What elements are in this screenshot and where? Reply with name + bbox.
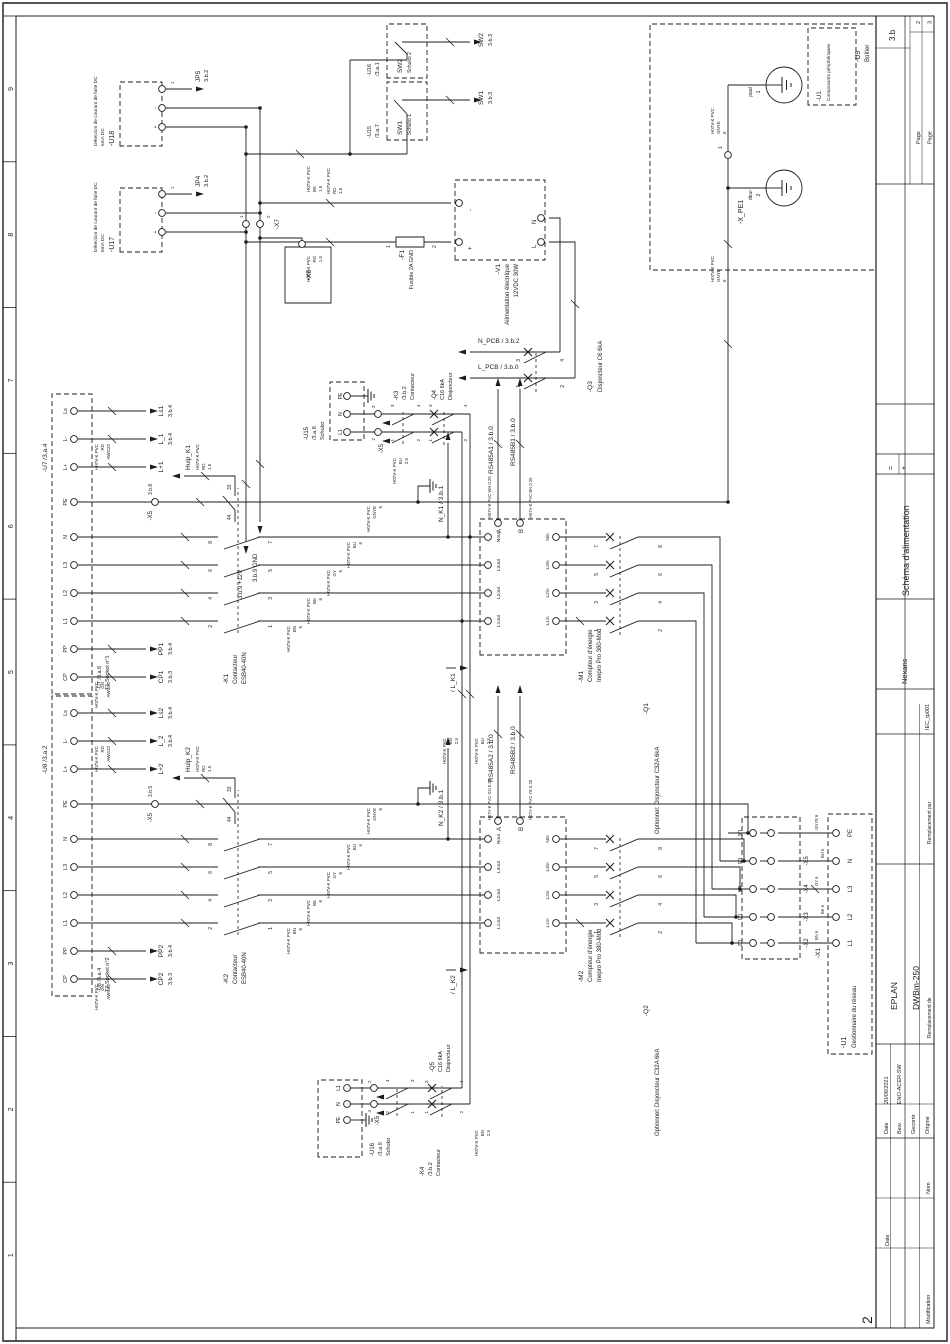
schematic-label: 3: [371, 405, 376, 408]
schematic-label: Hulp_K1: [185, 445, 192, 470]
schematic-label: A: [497, 827, 503, 831]
schematic-label: 5: [268, 871, 274, 874]
schematic-label: 6: [318, 900, 323, 903]
schematic-label: -M1: [578, 670, 585, 682]
schematic-label: Contacteur: [233, 955, 239, 984]
schematic-label: 1: [424, 1111, 429, 1114]
schematic-label: SW2: [478, 33, 485, 47]
schematic-label: GNYE: [716, 121, 721, 134]
schematic-label: 12VDC 30W: [514, 264, 520, 298]
terminal-circle: [485, 920, 492, 927]
schematic-label: 6mA DC: [100, 234, 106, 252]
signal-arrow: [458, 376, 466, 381]
schematic-label: SW1: [478, 91, 485, 105]
schematic-label: 2: [367, 1080, 372, 1083]
schematic-label: 6: [722, 279, 727, 282]
signal-arrow: [150, 465, 158, 470]
schematic-label: Page: [916, 131, 922, 144]
schematic-label: H07V-K PVC: [326, 871, 331, 898]
schematic-label: BK: [312, 598, 317, 604]
schematic-label: H07V-K PVC: [474, 737, 479, 764]
schematic-label: Schéma d'alimentation: [901, 505, 911, 596]
terminal-circle: [725, 152, 732, 159]
wire: [638, 537, 720, 861]
schematic-label: EPLAN: [889, 982, 899, 1010]
schematic-label: L2: [63, 892, 69, 898]
schematic-label: deur: [748, 190, 754, 200]
signal-arrow: [460, 666, 468, 671]
schematic-label: H07V-K PVC: [195, 745, 200, 772]
schematic-label: L_1: [158, 433, 165, 444]
terminal-circle: [375, 411, 382, 418]
schematic-label: 2: [658, 931, 664, 934]
schematic-sheet: 123456789DateNomModificationDate20/08/20…: [0, 0, 950, 1344]
terminal-circle: [485, 590, 492, 597]
signal-arrow: [376, 1095, 384, 1100]
schematic-label: PP1: [158, 642, 165, 655]
schematic-label: 3.b.2: [204, 70, 210, 82]
schematic-label: 2.5: [486, 1130, 491, 1137]
schematic-label: /3.a.1: [375, 62, 381, 76]
terminal-circle: [71, 920, 78, 927]
junction-dot: [726, 186, 730, 190]
terminal-circle: [375, 429, 382, 436]
schematic-label: -X5: [375, 1115, 381, 1125]
terminal-circle: [768, 940, 775, 947]
schematic-label: 4: [463, 404, 468, 407]
schematic-label: / L_K2: [450, 975, 457, 994]
schematic-label: 1: [170, 186, 175, 189]
schematic-label: Ls: [63, 408, 69, 414]
schematic-label: 1.5: [318, 256, 323, 263]
terminal-circle: [517, 818, 524, 825]
schematic-label: -U16: [367, 64, 373, 76]
schematic-label: 2: [756, 193, 762, 196]
schematic-label: H07V-K PVC: [346, 843, 351, 870]
column-number: 5: [8, 670, 15, 674]
wire: [395, 42, 407, 54]
schematic-label: -X5: [148, 812, 154, 822]
schematic-label: BN: [448, 738, 453, 744]
schematic-label: -U15: [367, 126, 373, 138]
schematic-label: GNYE: [372, 506, 377, 519]
terminal-circle: [159, 191, 166, 198]
schematic-label: ENO-ACER-SW: [897, 1063, 903, 1104]
signal-arrow: [150, 739, 158, 744]
signal-arrow: [150, 409, 158, 414]
terminal-circle: [71, 534, 78, 541]
schematic-label: L2: [63, 590, 69, 596]
schematic-label: H07V-K PVC GN 0.25: [487, 778, 492, 820]
schematic-label: -K3: [394, 390, 400, 400]
schematic-label: H07V-K PVC: [286, 927, 291, 954]
schematic-label: L2: [848, 913, 854, 920]
schematic-label: +: [153, 230, 159, 233]
wire: [638, 565, 712, 889]
terminal-circle: [833, 886, 840, 893]
schematic-label: -U7 /3.a.4: [42, 443, 49, 472]
signal-arrow: [150, 675, 158, 680]
terminal-circle: [344, 393, 351, 400]
terminal-circle: [71, 674, 78, 681]
signal-arrow: [172, 474, 180, 479]
schematic-label: 3: [428, 404, 433, 407]
signal-arrow: [518, 685, 523, 693]
schematic-label: N_K1 / 3.b.1: [438, 485, 445, 522]
schematic-label: AWG22: [106, 746, 111, 762]
schematic-label: 2: [371, 438, 376, 441]
schematic-label: L3in: [545, 862, 551, 871]
column-number: 3: [8, 962, 15, 966]
schematic-label: 1.5: [207, 765, 212, 772]
schematic-label: Schuko: [320, 422, 326, 440]
schematic-label: N: [336, 1102, 342, 1106]
terminal-circle: [299, 241, 306, 248]
schematic-label: BK 6: [820, 904, 825, 914]
schematic-label: Optionnel: Disjoncteur C32A 6kA: [655, 747, 661, 834]
schematic-label: 20/08/2021: [884, 1076, 890, 1104]
schematic-label: /3.a.8: [312, 426, 318, 440]
schematic-label: 2: [432, 245, 438, 248]
terminal-circle: [553, 892, 560, 899]
schematic-label: Contacteur: [410, 373, 416, 400]
junction-dot: [244, 240, 248, 244]
terminal-circle: [485, 892, 492, 899]
schematic-label: 6: [298, 626, 303, 629]
component-box: [828, 814, 872, 1054]
junction-dot: [258, 201, 262, 205]
schematic-label: 5: [594, 875, 600, 878]
schematic-label: RD: [100, 745, 105, 752]
schematic-label: Inepro Pro 380-Mod: [597, 629, 603, 682]
schematic-label: Nin: [545, 533, 551, 541]
terminal-circle: [159, 210, 166, 217]
terminal-circle: [71, 976, 78, 983]
schematic-label: N: [532, 220, 538, 224]
signal-arrow: [150, 437, 158, 442]
terminal-circle: [485, 562, 492, 569]
schematic-label: BK: [312, 900, 317, 906]
schematic-label: 3: [424, 1080, 429, 1083]
schematic-label: 3: [928, 21, 934, 24]
schematic-label: Date: [885, 1234, 891, 1246]
signal-arrow: [150, 711, 158, 716]
schematic-label: H07V-K PVC: [710, 107, 715, 134]
schematic-label: 3.b.4: [168, 707, 174, 719]
wire: [549, 242, 575, 378]
schematic-label: GNYE: [716, 269, 721, 282]
schematic-label: -X_PE1: [738, 200, 745, 224]
schematic-label: -: [153, 107, 159, 109]
schematic-label: Date: [884, 1122, 890, 1134]
schematic-label: L1in: [545, 918, 551, 927]
schematic-label: RD: [312, 255, 317, 262]
schematic-label: 8: [208, 541, 214, 544]
schematic-label: L1in: [545, 616, 551, 625]
schematic-label: Ls: [63, 710, 69, 716]
schematic-label: -U1: [841, 1037, 848, 1048]
schematic-label: 3.b.4: [168, 405, 174, 417]
schematic-label: BK: [312, 186, 317, 192]
signal-arrow: [496, 685, 501, 693]
schematic-label: N: [338, 412, 344, 416]
schematic-label: 6: [318, 598, 323, 601]
schematic-label: -X1: [815, 948, 822, 959]
schematic-label: U5: [736, 858, 742, 865]
schematic-label: Nom: [926, 1182, 932, 1194]
schematic-label: IEC_tp001: [925, 704, 931, 730]
schematic-label: L2out: [496, 586, 502, 599]
schematic-label: Modification: [926, 1295, 932, 1324]
schematic-label: BN: [292, 626, 297, 632]
column-number: 1: [8, 1253, 15, 1257]
schematic-label: L1out: [496, 916, 502, 929]
terminal-circle: [159, 124, 166, 131]
terminal-circle: [456, 239, 463, 246]
schematic-label: L2out: [496, 888, 502, 901]
schematic-label: Fusible 2A GND: [409, 250, 415, 289]
schematic-label: 3.b.4: [168, 735, 174, 747]
terminal-circle: [371, 1101, 378, 1108]
schematic-label: 3.b.4: [168, 643, 174, 655]
schematic-label: GNYE 6: [814, 814, 819, 830]
terminal-circle: [71, 801, 78, 808]
column-number: 8: [8, 233, 15, 237]
schematic-label: 4: [658, 903, 664, 906]
schematic-label: Contacteur: [233, 655, 239, 684]
schematic-label: 4: [560, 359, 566, 362]
schematic-label: L3: [63, 864, 69, 870]
terminal-circle: [750, 914, 757, 921]
schematic-label: -K4: [420, 1166, 426, 1176]
schematic-label: Gecontr: [911, 1114, 917, 1134]
schematic-label: N_PCB / 3.b.2: [478, 338, 520, 345]
schematic-label: -U15: [304, 426, 310, 440]
schematic-label: PE: [336, 1116, 342, 1123]
schematic-label: -X3: [804, 912, 810, 922]
wire: [638, 593, 704, 917]
signal-arrow: [460, 968, 468, 973]
schematic-label: BU: [352, 542, 357, 548]
schematic-label: 3: [268, 597, 274, 600]
terminal-circle: [71, 948, 78, 955]
terminal-circle: [344, 429, 351, 436]
schematic-label: RD: [201, 765, 206, 772]
schematic-label: 3: [594, 903, 600, 906]
schematic-label: 3: [594, 601, 600, 604]
wire: [524, 352, 546, 363]
schematic-label: 2: [560, 385, 566, 388]
schematic-label: L1: [336, 1085, 342, 1091]
column-number: 9: [8, 87, 15, 91]
schematic-label: H07V-K PVC: [392, 457, 397, 484]
schematic-label: -U17: [109, 237, 116, 252]
schematic-label: -X5: [379, 443, 385, 453]
junction-dot: [244, 230, 248, 234]
schematic-label: H07V-K PVC: [306, 597, 311, 624]
schematic-label: 6: [658, 875, 664, 878]
junction-dot: [258, 106, 262, 110]
schematic-label: BU: [352, 844, 357, 850]
terminal-circle: [833, 858, 840, 865]
wire: [418, 486, 430, 502]
schematic-label: 3: [268, 899, 274, 902]
schematic-label: Bew.: [897, 1122, 903, 1134]
schematic-label: -Q4: [432, 389, 438, 400]
component-box: [808, 28, 856, 105]
terminal-circle: [833, 830, 840, 837]
schematic-label: N: [63, 837, 69, 841]
schematic-label: 7: [268, 843, 274, 846]
schematic-label: -Q3: [587, 381, 594, 392]
schematic-label: RD: [100, 443, 105, 450]
schematic-label: 3.b: [888, 29, 897, 41]
schematic-label: BU: [480, 738, 485, 744]
schematic-label: /3.a.7: [375, 124, 381, 138]
schematic-label: N: [63, 535, 69, 539]
schematic-label: Détection de courant de fuite DC: [93, 76, 99, 146]
schematic-label: BN: [480, 1130, 485, 1136]
schematic-label: H07V-K PVC: [306, 899, 311, 926]
schematic-label: CP2: [158, 972, 165, 985]
terminal-circle: [257, 221, 264, 228]
junction-dot: [446, 535, 450, 539]
schematic-label: CP: [63, 975, 69, 983]
terminal-circle: [750, 886, 757, 893]
wire: [610, 839, 638, 851]
schematic-label: RS485A1 / 3.b.0: [488, 426, 495, 474]
schematic-label: 6: [338, 570, 343, 573]
schematic-label: 2: [416, 439, 421, 442]
terminal-circle: [553, 864, 560, 871]
schematic-label: H07V-K PVC: [346, 541, 351, 568]
schematic-label: Boîtier: [865, 45, 871, 62]
junction-dot: [468, 535, 472, 539]
junction-dot: [416, 500, 420, 504]
terminal-circle: [344, 1085, 351, 1092]
schematic-label: 4: [416, 404, 421, 407]
wire: [224, 867, 260, 879]
schematic-label: Composants périphériques: [826, 43, 832, 101]
schematic-label: GY: [332, 570, 337, 577]
schematic-label: Compteur d'énergie: [588, 929, 594, 982]
schematic-label: CP1: [158, 670, 165, 683]
terminal-circle: [495, 818, 502, 825]
schematic-label: Hulp_K2: [185, 747, 192, 772]
terminal-circle: [553, 534, 560, 541]
schematic-label: 1: [428, 439, 433, 442]
schematic-label: N: [848, 859, 854, 863]
schematic-label: C16 6kA: [438, 1051, 444, 1072]
schematic-label: 1.5: [338, 187, 343, 194]
schematic-label: Contacteur: [436, 1149, 442, 1176]
schematic-label: Compteur d'énergie: [588, 629, 594, 682]
schematic-label: L3in: [545, 560, 551, 569]
junction-dot: [726, 500, 730, 504]
schematic-label: /3.b.2: [402, 386, 408, 400]
schematic-label: Inepro Pro 380-Mod: [597, 929, 603, 982]
schematic-label: L-: [63, 436, 69, 441]
schematic-label: 1: [718, 146, 724, 149]
schematic-label: 4: [658, 601, 664, 604]
schematic-label: 1: [170, 81, 175, 84]
schematic-label: L2in: [545, 588, 551, 597]
schematic-label: 8: [208, 843, 214, 846]
schematic-label: 1: [756, 90, 762, 93]
schematic-label: L+: [63, 766, 69, 772]
schematic-label: 6: [378, 506, 383, 509]
schematic-label: Ls1: [158, 405, 165, 416]
schematic-label: 2: [266, 215, 271, 218]
schematic-label: +: [901, 466, 908, 470]
schematic-label: 3: [410, 1079, 415, 1082]
signal-arrow: [258, 526, 263, 534]
component-box: [650, 24, 876, 270]
signal-arrow: [150, 977, 158, 982]
schematic-label: 1: [268, 625, 274, 628]
schematic-label: 2: [208, 927, 214, 930]
wire: [224, 839, 260, 851]
schematic-label: U2: [736, 940, 742, 947]
terminal-circle: [750, 940, 757, 947]
wire: [394, 100, 407, 114]
schematic-label: -K2: [223, 974, 230, 985]
schematic-label: 1: [239, 215, 244, 218]
wire: [224, 895, 260, 907]
schematic-label: 1: [516, 385, 522, 388]
junction-dot: [244, 152, 248, 156]
schematic-label: PE: [848, 829, 854, 837]
terminal-circle: [71, 892, 78, 899]
schematic-label: Optionnel: Disjoncteur C32A 6kA: [655, 1049, 661, 1136]
schematic-label: JP4: [195, 175, 202, 187]
terminal-circle: [71, 836, 78, 843]
junction-dot: [258, 236, 262, 240]
junction-dot: [258, 211, 262, 215]
terminal-circle: [833, 914, 840, 921]
schematic-label: AWG22: [106, 984, 111, 1000]
schematic-label: L3out: [496, 558, 502, 571]
schematic-label: BU 6: [820, 848, 825, 858]
schematic-label: /3.a.9: [378, 1142, 384, 1156]
signal-arrow: [172, 776, 180, 781]
schematic-label: H07V-K PVC: [94, 681, 99, 708]
junction-dot: [746, 831, 750, 835]
schematic-label: 4: [459, 1080, 464, 1083]
wire: [610, 593, 638, 605]
schematic-label: L_2: [158, 735, 165, 746]
wire: [610, 565, 638, 577]
schematic-label: -X4: [804, 884, 810, 894]
schematic-label: H07V-K PVC: [710, 255, 715, 282]
schematic-label: 6: [358, 542, 363, 545]
schematic-label: AWG22: [106, 682, 111, 698]
schematic-label: H07V-K PVC: [195, 443, 200, 470]
schematic-label: L: [532, 244, 538, 248]
wire: [638, 839, 744, 861]
terminal-circle: [71, 618, 78, 625]
schematic-label: DWBm-250: [911, 966, 921, 1010]
terminal-circle: [495, 520, 502, 527]
schematic-label: 1: [390, 439, 395, 442]
terminal-circle: [71, 436, 78, 443]
schematic-label: -X5: [804, 856, 810, 866]
signal-arrow: [196, 192, 204, 197]
schematic-label: 33: [227, 484, 233, 490]
schematic-label: -X2: [804, 938, 810, 948]
schematic-label: 6: [378, 808, 383, 811]
signal-arrow: [458, 350, 466, 355]
